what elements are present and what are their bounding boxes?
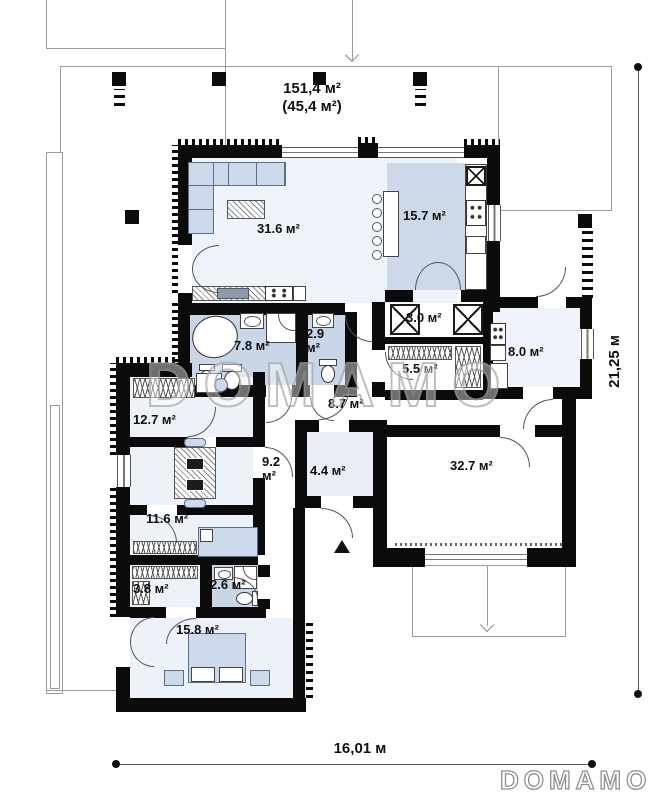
door-arc [500, 437, 530, 467]
fridge-icon [466, 166, 486, 186]
kitchen-cabinet [293, 286, 306, 301]
room-label-closet: 3.8 м² [133, 581, 169, 596]
kitchen-cabinet [466, 236, 486, 254]
wall [580, 297, 592, 329]
window [282, 147, 358, 158]
dimension-line-right [638, 66, 639, 694]
door-arc [321, 508, 353, 538]
dining-chair [372, 208, 382, 218]
wall [385, 290, 413, 302]
window [488, 205, 501, 241]
wall [385, 337, 483, 344]
wall [178, 145, 282, 158]
wall [358, 143, 378, 158]
desk-chair [184, 438, 206, 447]
terrace-edge-line [498, 210, 611, 211]
door-arc [536, 267, 566, 297]
terrace-edge-line [46, 690, 118, 691]
pillow [191, 667, 215, 682]
brand-logo: DOMAMO [500, 765, 651, 796]
pillow [200, 529, 213, 542]
wall [373, 420, 387, 562]
kitchen-sink [217, 288, 249, 299]
height-dimension-label: 21,25 м [606, 335, 623, 388]
sink-icon [240, 313, 264, 329]
dining-chair [372, 222, 382, 232]
wardrobe-rail [132, 566, 198, 579]
entrance-arrow-icon [334, 540, 350, 553]
wall [562, 397, 576, 562]
wall [372, 302, 385, 350]
garage-threshold [395, 543, 562, 546]
stove-icon [265, 286, 293, 301]
dimension-dot [634, 690, 642, 698]
wall [295, 496, 321, 508]
wall [116, 698, 306, 712]
room-label-vestibule: 4.4 м² [310, 463, 346, 478]
dining-chair [372, 194, 382, 204]
floor-plan-canvas: 151,4 м² (45,4 м²) 31.6 м² 15.7 м² 3.0 м… [0, 0, 659, 800]
sofa [188, 162, 214, 234]
column [578, 214, 592, 228]
dining-chair [372, 250, 382, 260]
watermark-text: DOMAMO [146, 350, 513, 421]
wall [487, 145, 500, 205]
window [581, 329, 594, 359]
driveway-center-line [487, 566, 488, 626]
terrace-edge-line [60, 66, 61, 152]
garage-door [425, 551, 527, 564]
room-label-utility: 8.0 м² [508, 344, 544, 359]
wall-hatch [582, 228, 593, 298]
door-arc [523, 399, 553, 429]
terrace-edge-line [611, 66, 612, 211]
room-label-living: 31.6 м² [257, 221, 300, 236]
wall [258, 565, 270, 577]
secondary-area-label: (45,4 м²) [250, 98, 374, 115]
total-area-label: 151,4 м² [250, 80, 374, 97]
room-label-bathroom2: 2.6 м² [210, 577, 246, 592]
wall [373, 548, 425, 567]
dimension-dot [112, 760, 120, 768]
room-label-bedroom2: 11.6 м² [146, 511, 188, 526]
room-label-study-unit: м² [262, 469, 280, 483]
desk [174, 447, 216, 499]
wall [116, 363, 130, 455]
wall [293, 508, 305, 712]
column [413, 72, 427, 86]
wall [196, 607, 266, 618]
dimension-dot [634, 63, 642, 71]
terrace-side-band-inner [50, 405, 60, 689]
room-label-study: 9.2 м² [262, 455, 280, 483]
room-label-study-value: 9.2 [262, 455, 280, 469]
wall [483, 297, 538, 308]
wall-hatch [415, 89, 426, 106]
monitor-icon [186, 479, 204, 491]
ridge-arrow-icon [345, 48, 359, 62]
room-label-garage: 32.7 м² [450, 458, 493, 473]
nightstand [250, 670, 270, 686]
column [212, 72, 226, 86]
wall-hatch [114, 89, 125, 106]
dining-chair [372, 236, 382, 246]
terrace-edge-line [60, 66, 611, 67]
wall [527, 548, 576, 567]
coffee-table [227, 200, 265, 219]
wall [295, 420, 319, 432]
monitor-icon [186, 458, 204, 470]
roof-outline-line [46, 48, 226, 49]
nightstand [164, 670, 184, 686]
wall [295, 420, 307, 508]
room-label-pantry: 3.0 м² [406, 310, 442, 325]
room-label-wc-value: 2.9 [306, 327, 324, 341]
wall [130, 505, 147, 515]
dining-table [383, 191, 399, 257]
wall-hatch [306, 620, 313, 698]
wall [116, 487, 130, 617]
boiler-stove-icon [490, 323, 506, 345]
shower [266, 313, 296, 343]
wall [216, 437, 265, 447]
storage-cabinet [453, 304, 483, 335]
wall [387, 425, 500, 437]
stove-icon [466, 200, 486, 226]
room-label-kitchen: 15.7 м² [403, 208, 446, 223]
pillow [219, 667, 243, 682]
roof-outline-line [46, 0, 47, 48]
wall [130, 607, 166, 618]
column [125, 210, 139, 224]
window [378, 147, 464, 158]
wall [130, 437, 188, 447]
desk-chair [184, 499, 206, 508]
window [117, 455, 131, 487]
column [112, 72, 126, 86]
width-dimension-label: 16,01 м [300, 740, 420, 757]
room-label-bedroom3: 15.8 м² [176, 622, 219, 637]
